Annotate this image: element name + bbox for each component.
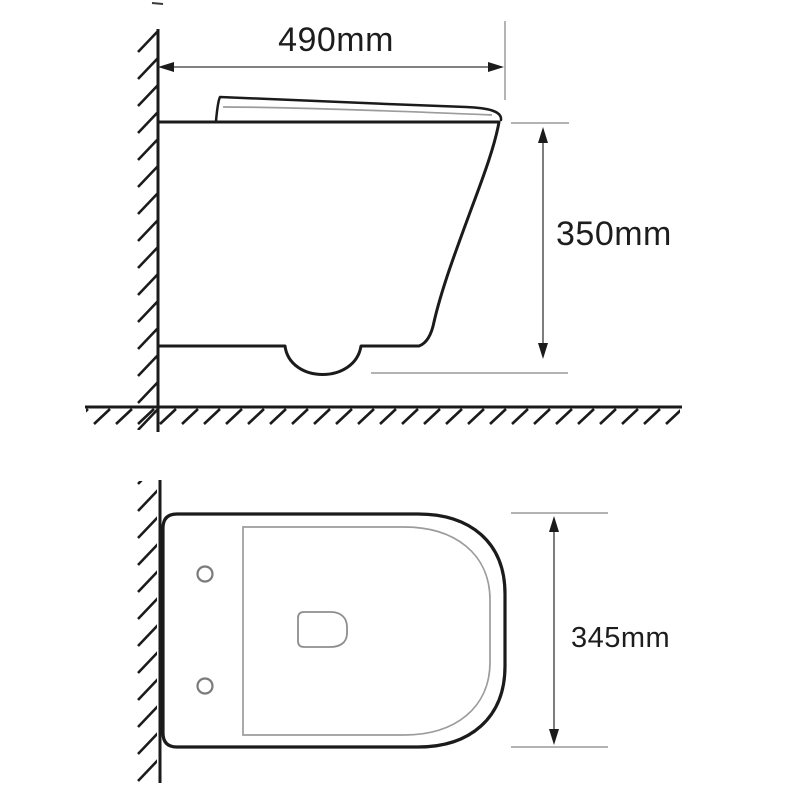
top-view: 345mm [131, 480, 670, 783]
wall-hatching-side [131, 30, 157, 430]
height-dimension: 350mm [371, 123, 672, 373]
seat-lid-inner-line [223, 107, 492, 115]
toilet-bowl-profile [159, 122, 499, 375]
arrow-up-icon [538, 127, 548, 143]
seat-lid-profile [216, 97, 501, 121]
side-view: 490mm 350mm [85, 3, 682, 432]
arrow-down-icon [549, 729, 559, 745]
mounting-hole-bottom [198, 679, 213, 694]
floor-hatching [86, 408, 680, 425]
arrow-right-icon [488, 62, 504, 72]
width-dimension-label: 490mm [278, 21, 394, 59]
depth-dimension-label: 345mm [571, 622, 670, 654]
stray-mark [152, 3, 163, 4]
toilet-outer-outline [163, 514, 505, 747]
wall-hatching-top [131, 481, 157, 782]
drawing-canvas: 490mm 350mm [0, 0, 800, 800]
mounting-hole-top [198, 567, 213, 582]
technical-drawing-page: 490mm 350mm [0, 0, 800, 800]
arrow-up-icon [549, 516, 559, 532]
height-dimension-label: 350mm [556, 215, 672, 253]
arrow-left-icon [158, 62, 174, 72]
drain-opening-outline [298, 612, 347, 647]
depth-dimension: 345mm [511, 513, 670, 747]
seat-inner-outline [243, 527, 490, 735]
width-dimension: 490mm [158, 21, 505, 100]
arrow-down-icon [538, 343, 548, 359]
